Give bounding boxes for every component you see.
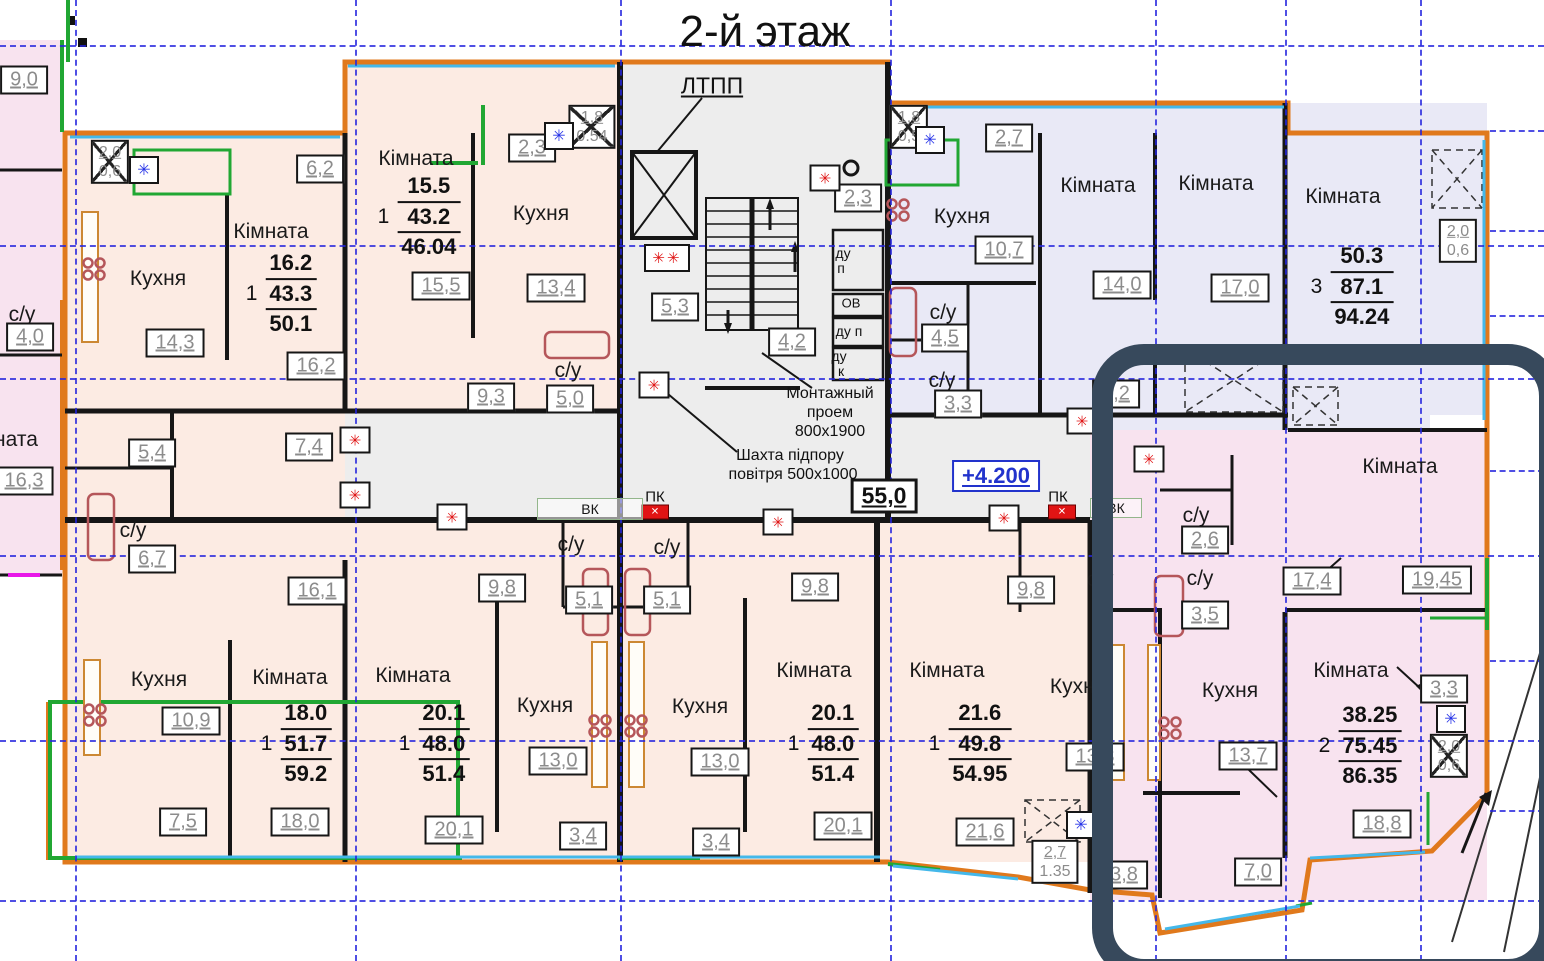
room-name-label: Кімната bbox=[1305, 185, 1380, 209]
annotation-text: 800х1900 bbox=[795, 423, 865, 441]
apartment-summary: 115.543.246.04 bbox=[378, 172, 461, 262]
annotation-text: проем bbox=[807, 404, 853, 422]
apartment-areas: 15.543.246.04 bbox=[397, 172, 460, 262]
area-value-box: 16,1 bbox=[288, 577, 347, 606]
apartment-area-value: 20.1 bbox=[418, 699, 469, 730]
stairs-up-arrow bbox=[766, 198, 774, 209]
balcony-area-bottom: 1.35 bbox=[1039, 862, 1070, 881]
apartment-rooms-count: 1 bbox=[246, 282, 258, 306]
room-name-label: с/у bbox=[1187, 567, 1214, 591]
apartment-area-value: 15.5 bbox=[397, 172, 460, 203]
apartment-area-value: 46.04 bbox=[397, 233, 460, 262]
room-name-label: Кухня bbox=[131, 668, 187, 692]
room-name-label: Кухня bbox=[672, 695, 728, 719]
stairs-down-arrow bbox=[724, 323, 732, 334]
grid-line-horizontal bbox=[0, 555, 1544, 557]
area-value-box: 3,5 bbox=[1181, 601, 1229, 630]
vent-boxes bbox=[1025, 150, 1482, 842]
annotation-text: п bbox=[837, 260, 845, 276]
apartment-summary: 120.148.051.4 bbox=[788, 699, 859, 789]
red-double-asterisk-marker: ✳✳ bbox=[644, 244, 690, 272]
balcony-area-top: 1,8 bbox=[576, 108, 607, 127]
area-value-box: 5,0 bbox=[546, 385, 594, 414]
page-title: 2-й этаж bbox=[680, 7, 851, 57]
area-value-box: 19,45 bbox=[1402, 566, 1472, 595]
room-name-label: с/у bbox=[558, 533, 585, 557]
area-value-box: 5,3 bbox=[651, 293, 699, 322]
apartment-summary: 238.2575.4586.35 bbox=[1319, 701, 1402, 791]
balcony-area-top: 2,0 bbox=[1438, 737, 1460, 756]
fire-cock-symbol: ✕ bbox=[1048, 505, 1076, 520]
area-value-box: 13,7 bbox=[1219, 742, 1278, 771]
room-name-label: Кімната bbox=[252, 666, 327, 690]
apartment-area-value: 51.7 bbox=[280, 730, 331, 761]
apartment-area-value: 51.4 bbox=[418, 760, 469, 789]
grid-line-vertical bbox=[1420, 0, 1422, 961]
area-value-box: 16,2 bbox=[287, 352, 346, 381]
bathtub bbox=[890, 288, 916, 356]
apartment-area-value: 50.3 bbox=[1330, 242, 1393, 273]
area-value-box: 16,3 bbox=[0, 467, 53, 496]
area-value-box: 5,1 bbox=[643, 586, 691, 615]
area-value-box: 20,1 bbox=[425, 816, 484, 845]
area-value-box: 10,9 bbox=[162, 707, 221, 736]
area-value-box: 3,3 bbox=[1420, 675, 1468, 704]
balcony-area-top: 1,8 bbox=[898, 108, 920, 127]
apartment-area-value: 94.24 bbox=[1330, 303, 1393, 332]
apartment-area-value: 75.45 bbox=[1338, 732, 1401, 763]
area-value-box: 3,4 bbox=[559, 822, 607, 851]
room-name-label: ната bbox=[0, 428, 38, 452]
apartment-area-value: 18.0 bbox=[280, 699, 331, 730]
area-value-box: 55,0 bbox=[851, 479, 918, 514]
apartment-area-value: 54.95 bbox=[948, 760, 1011, 789]
grid-stub bbox=[1490, 470, 1544, 472]
room-name-label: Кухня bbox=[517, 694, 573, 718]
apartment-summary: 116.243.350.1 bbox=[246, 249, 317, 339]
balcony-area-box: 2,00,6 bbox=[91, 140, 129, 184]
floor-plan: КухняКімнатаКімнатаКухняс/уКухняКімнатаК… bbox=[0, 0, 1544, 961]
blue-snowflake-marker: ✳ bbox=[129, 156, 159, 184]
apartment-rooms-count: 1 bbox=[788, 732, 800, 756]
annotation-text: Шахта підпору bbox=[736, 447, 844, 465]
apartment-areas: 21.649.854.95 bbox=[948, 699, 1011, 789]
area-value-box: 9,8 bbox=[791, 573, 839, 602]
room-name-label: Кімната bbox=[1362, 455, 1437, 479]
vk-box: ВК bbox=[537, 498, 643, 520]
balcony-area-box: 2,00,6 bbox=[1430, 734, 1468, 778]
balcony-area-bottom: 0,6 bbox=[1447, 241, 1469, 260]
annotation-text: ду п bbox=[836, 323, 863, 339]
annotation-text: ЛТПП bbox=[681, 73, 743, 100]
area-value-box: 14,3 bbox=[146, 329, 205, 358]
area-value-box: 13,4 bbox=[527, 274, 586, 303]
apartment-summary: 120.148.051.4 bbox=[399, 699, 470, 789]
area-value-box: 10,7 bbox=[975, 236, 1034, 265]
apartment-rooms-count: 1 bbox=[399, 732, 411, 756]
annotation-text: ПК bbox=[645, 489, 665, 506]
area-value-box: 14,0 bbox=[1093, 271, 1152, 300]
area-value-box: 18,8 bbox=[1353, 810, 1412, 839]
annotation-text: ОВ bbox=[842, 296, 861, 311]
balcony-area-box: 2,00,6 bbox=[1439, 219, 1477, 263]
grid-line-vertical bbox=[1285, 0, 1287, 961]
room-name-label: Кухня bbox=[934, 205, 990, 229]
apartment-summary: 121.649.854.95 bbox=[929, 699, 1012, 789]
annotation-text: к bbox=[838, 363, 844, 379]
apartment-area-value: 49.8 bbox=[948, 730, 1011, 761]
grid-line-horizontal bbox=[0, 378, 1544, 380]
balcony-area-bottom: 0,6 bbox=[1438, 756, 1460, 775]
apartment-rooms-count: 1 bbox=[261, 732, 273, 756]
area-value-box: 9,3 bbox=[467, 383, 515, 412]
red-asterisk-marker: ✳ bbox=[340, 482, 371, 509]
apartment-area-value: 48.0 bbox=[418, 730, 469, 761]
balcony-area-top: 2,0 bbox=[99, 143, 121, 162]
room-name-label: с/у bbox=[1087, 568, 1114, 592]
room-name-label: Кімната bbox=[1178, 172, 1253, 196]
room-name-label: Кімната bbox=[378, 147, 453, 171]
blue-snowflake-marker: ✳ bbox=[1436, 705, 1466, 733]
grid-line-vertical bbox=[75, 0, 77, 961]
annotation-text: 3 bbox=[1533, 942, 1541, 958]
blue-snowflake-marker: ✳ bbox=[544, 122, 574, 150]
apartment-rooms-count: 2 bbox=[1319, 734, 1331, 758]
grid-line-vertical bbox=[355, 0, 357, 961]
grid-stub bbox=[1490, 130, 1544, 132]
area-value-box: 21,6 bbox=[956, 818, 1015, 847]
apartment-area-value: 86.35 bbox=[1338, 762, 1401, 791]
annotation-text: ПК bbox=[1048, 489, 1068, 506]
area-value-box: 15,5 bbox=[412, 272, 471, 301]
room-name-label: Кімната bbox=[1060, 174, 1135, 198]
room-name-label: Кухня bbox=[1202, 679, 1258, 703]
area-value-box: 13,3 bbox=[1066, 743, 1125, 772]
room-name-label: с/у bbox=[1183, 504, 1210, 528]
apartment-area-value: 48.0 bbox=[807, 730, 858, 761]
grid-stub bbox=[1490, 660, 1544, 662]
area-value-box: 5,1 bbox=[565, 586, 613, 615]
room-name-label: Кімната bbox=[233, 220, 308, 244]
balcony-area-bottom: 0.54 bbox=[576, 127, 607, 146]
apartment-areas: 20.148.051.4 bbox=[807, 699, 858, 789]
room-name-label: Кімната bbox=[776, 659, 851, 683]
area-value-box: 5,4 bbox=[128, 439, 176, 468]
apartment-area-value: 20.1 bbox=[807, 699, 858, 730]
grid-stub bbox=[1490, 810, 1544, 812]
area-value-box: 9,0 bbox=[0, 66, 48, 95]
apartment-areas: 16.243.350.1 bbox=[265, 249, 316, 339]
apartment-summary: 118.051.759.2 bbox=[261, 699, 332, 789]
room-name-label: с/у bbox=[120, 519, 147, 543]
apartment-area-value: 38.25 bbox=[1338, 701, 1401, 732]
area-value-box: 4,0 bbox=[6, 323, 54, 352]
apartment-area-value: 87.1 bbox=[1330, 273, 1393, 304]
fire-cock-symbol: ✕ bbox=[641, 505, 669, 520]
apartment-area-value: 43.3 bbox=[265, 280, 316, 311]
apartment-rooms-count: 1 bbox=[929, 732, 941, 756]
annotation-text: Монтажный bbox=[786, 385, 873, 403]
grid-line-horizontal bbox=[0, 900, 1544, 902]
grid-stub bbox=[1490, 315, 1544, 317]
area-value-box: 9,8 bbox=[478, 574, 526, 603]
area-value-box: 2,6 bbox=[1181, 526, 1229, 555]
room-name-label: Кімната bbox=[375, 664, 450, 688]
red-asterisk-marker: ✳ bbox=[340, 427, 371, 454]
red-asterisk-marker: ✳ bbox=[810, 165, 841, 192]
apartment-area-value: 50.1 bbox=[265, 310, 316, 339]
bathtub bbox=[545, 332, 609, 358]
apartment-areas: 20.148.051.4 bbox=[418, 699, 469, 789]
apartment-area-value: 43.2 bbox=[397, 203, 460, 234]
room-name-label: с/у bbox=[654, 536, 681, 560]
red-asterisk-marker: ✳ bbox=[639, 372, 670, 399]
grid-stub bbox=[1490, 230, 1544, 232]
area-value-box: 4,2 bbox=[768, 328, 816, 357]
area-value-box: 7,0 bbox=[1234, 858, 1282, 887]
area-value-box: 20,1 bbox=[814, 812, 873, 841]
red-asterisk-marker: ✳ bbox=[437, 504, 468, 531]
area-value-box: 7,4 bbox=[285, 433, 333, 462]
apartment-rooms-count: 3 bbox=[1311, 275, 1323, 299]
room-name-label: с/у bbox=[930, 301, 957, 325]
area-value-box: 3,3 bbox=[934, 390, 982, 419]
area-value-box: 6,7 bbox=[128, 545, 176, 574]
balcony-area-box: 1,80.54 bbox=[568, 105, 615, 149]
apartment-areas: 38.2575.4586.35 bbox=[1338, 701, 1401, 791]
annotation-text: повітря 500х1000 bbox=[728, 466, 857, 484]
red-asterisk-marker: ✳ bbox=[989, 505, 1020, 532]
balcony-area-bottom: 0,6 bbox=[99, 162, 121, 181]
area-value-box: 13,0 bbox=[691, 748, 750, 777]
area-value-box: 4,5 bbox=[921, 324, 969, 353]
blue-snowflake-marker: ✳ bbox=[1066, 811, 1096, 839]
apartment-areas: 18.051.759.2 bbox=[280, 699, 331, 789]
area-value-box: 9,8 bbox=[1007, 576, 1055, 605]
blue-snowflake-marker: ✳ bbox=[915, 126, 945, 154]
red-asterisk-marker: ✳ bbox=[1067, 408, 1098, 435]
apartment-rooms-count: 1 bbox=[378, 205, 390, 229]
area-value-box: 7,5 bbox=[159, 808, 207, 837]
area-value-box: 3,4 bbox=[692, 828, 740, 857]
balcony-area-top: 2,0 bbox=[1447, 222, 1469, 241]
area-value-box: 6,2 bbox=[296, 155, 344, 184]
room-name-label: Кухня bbox=[513, 202, 569, 226]
apartment-area-value: 16.2 bbox=[265, 249, 316, 280]
area-value-box: 17,0 bbox=[1211, 274, 1270, 303]
apartment-area-value: 59.2 bbox=[280, 760, 331, 789]
apartment-summary: 350.387.194.24 bbox=[1311, 242, 1394, 332]
apartment-areas: 50.387.194.24 bbox=[1330, 242, 1393, 332]
room-name-label: с/у bbox=[555, 359, 582, 383]
bathtub bbox=[88, 494, 114, 560]
area-value-box: 2,3 bbox=[834, 184, 882, 213]
room-name-label: Кімната bbox=[909, 659, 984, 683]
grid-line-vertical bbox=[620, 0, 622, 961]
area-value-box: 13,0 bbox=[529, 747, 588, 776]
building-outline bbox=[48, 62, 1487, 933]
apartment-area-value: 51.4 bbox=[807, 760, 858, 789]
red-asterisk-marker: ✳ bbox=[763, 509, 794, 536]
area-value-box: 17,4 bbox=[1283, 567, 1342, 596]
area-value-box: 2,7 bbox=[985, 124, 1033, 153]
grid-line-horizontal bbox=[0, 740, 1544, 742]
vk-box: ВК bbox=[1090, 498, 1142, 518]
balcony-area-box: 2,71.35 bbox=[1031, 840, 1078, 884]
room-name-label: Кімната bbox=[1313, 659, 1388, 683]
balcony-area-top: 2,7 bbox=[1039, 843, 1070, 862]
windows bbox=[70, 66, 1484, 929]
area-value-box: 8,2 bbox=[1092, 380, 1140, 409]
area-value-box: 18,0 bbox=[271, 808, 330, 837]
apartment-area-value: 21.6 bbox=[948, 699, 1011, 730]
annotation-text: ду bbox=[831, 348, 846, 364]
level-mark: +4.200 bbox=[952, 460, 1040, 492]
room-name-label: Кухня bbox=[1050, 675, 1106, 699]
red-asterisk-marker: ✳ bbox=[1134, 446, 1165, 473]
annotation-text: ду bbox=[835, 245, 850, 261]
room-name-label: Кухня bbox=[130, 267, 186, 291]
area-value-box: 3,8 bbox=[1100, 861, 1148, 890]
grid-line-vertical bbox=[1155, 0, 1157, 961]
